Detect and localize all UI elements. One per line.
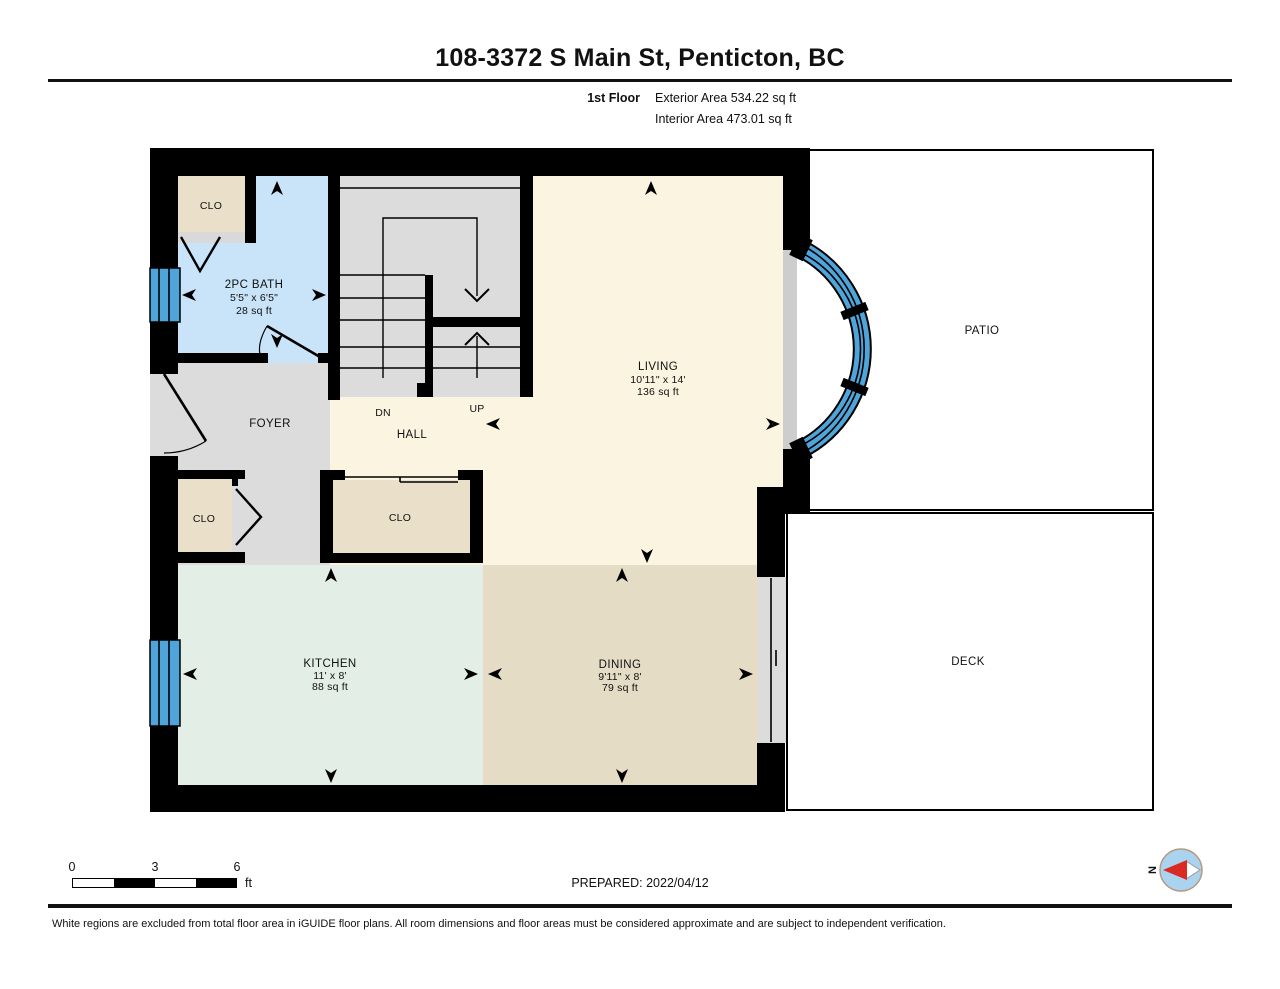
scale-tick-3: 3 xyxy=(152,860,159,874)
page-title: 108-3372 S Main St, Penticton, BC xyxy=(0,44,1280,73)
bath-dims: 5'5" x 6'5" xyxy=(230,292,278,304)
scale-tick-6: 6 xyxy=(234,860,241,874)
kitchen-window xyxy=(150,640,180,726)
closet-top-label: CLO xyxy=(200,200,222,212)
deck-label: DECK xyxy=(951,656,985,668)
compass-north-label: N xyxy=(1147,866,1159,874)
sliding-door xyxy=(758,577,786,743)
stairs-down-label: DN xyxy=(375,407,391,419)
bath-window xyxy=(150,268,180,322)
kitchen-area: 88 sq ft xyxy=(312,681,348,693)
living-label: LIVING xyxy=(638,361,678,373)
dining-area: 79 sq ft xyxy=(602,682,638,694)
title-divider xyxy=(48,79,1232,82)
entry-opening xyxy=(150,374,178,456)
bath-area: 28 sq ft xyxy=(236,305,272,317)
living-area: 136 sq ft xyxy=(637,386,679,398)
foyer-label: FOYER xyxy=(249,418,291,430)
compass-icon: N xyxy=(1130,843,1240,899)
prepared-date: PREPARED: 2022/04/12 xyxy=(0,876,1280,890)
living-dims: 10'11" x 14' xyxy=(630,374,685,386)
bay-window-sill-strip xyxy=(783,250,797,449)
hall-label: HALL xyxy=(397,429,428,441)
footer-divider xyxy=(48,904,1232,908)
scale-tick-0: 0 xyxy=(69,860,76,874)
floor-plan: 2PC BATH 5'5" x 6'5" 28 sq ft LIVING 10'… xyxy=(148,146,1156,814)
interior-area-text: Interior Area 473.01 sq ft xyxy=(655,112,792,126)
closet-center-label: CLO xyxy=(389,512,411,524)
disclaimer-text: White regions are excluded from total fl… xyxy=(52,918,946,930)
bath-label: 2PC BATH xyxy=(225,279,284,291)
exterior-area-text: Exterior Area 534.22 sq ft xyxy=(655,91,796,105)
dining-label: DINING xyxy=(599,659,642,671)
kitchen-label: KITCHEN xyxy=(303,658,356,670)
patio-label: PATIO xyxy=(965,325,1000,337)
closet-left-label: CLO xyxy=(193,513,215,525)
floor-label: 1st Floor xyxy=(0,91,640,105)
stairs-up-label: UP xyxy=(470,403,485,415)
